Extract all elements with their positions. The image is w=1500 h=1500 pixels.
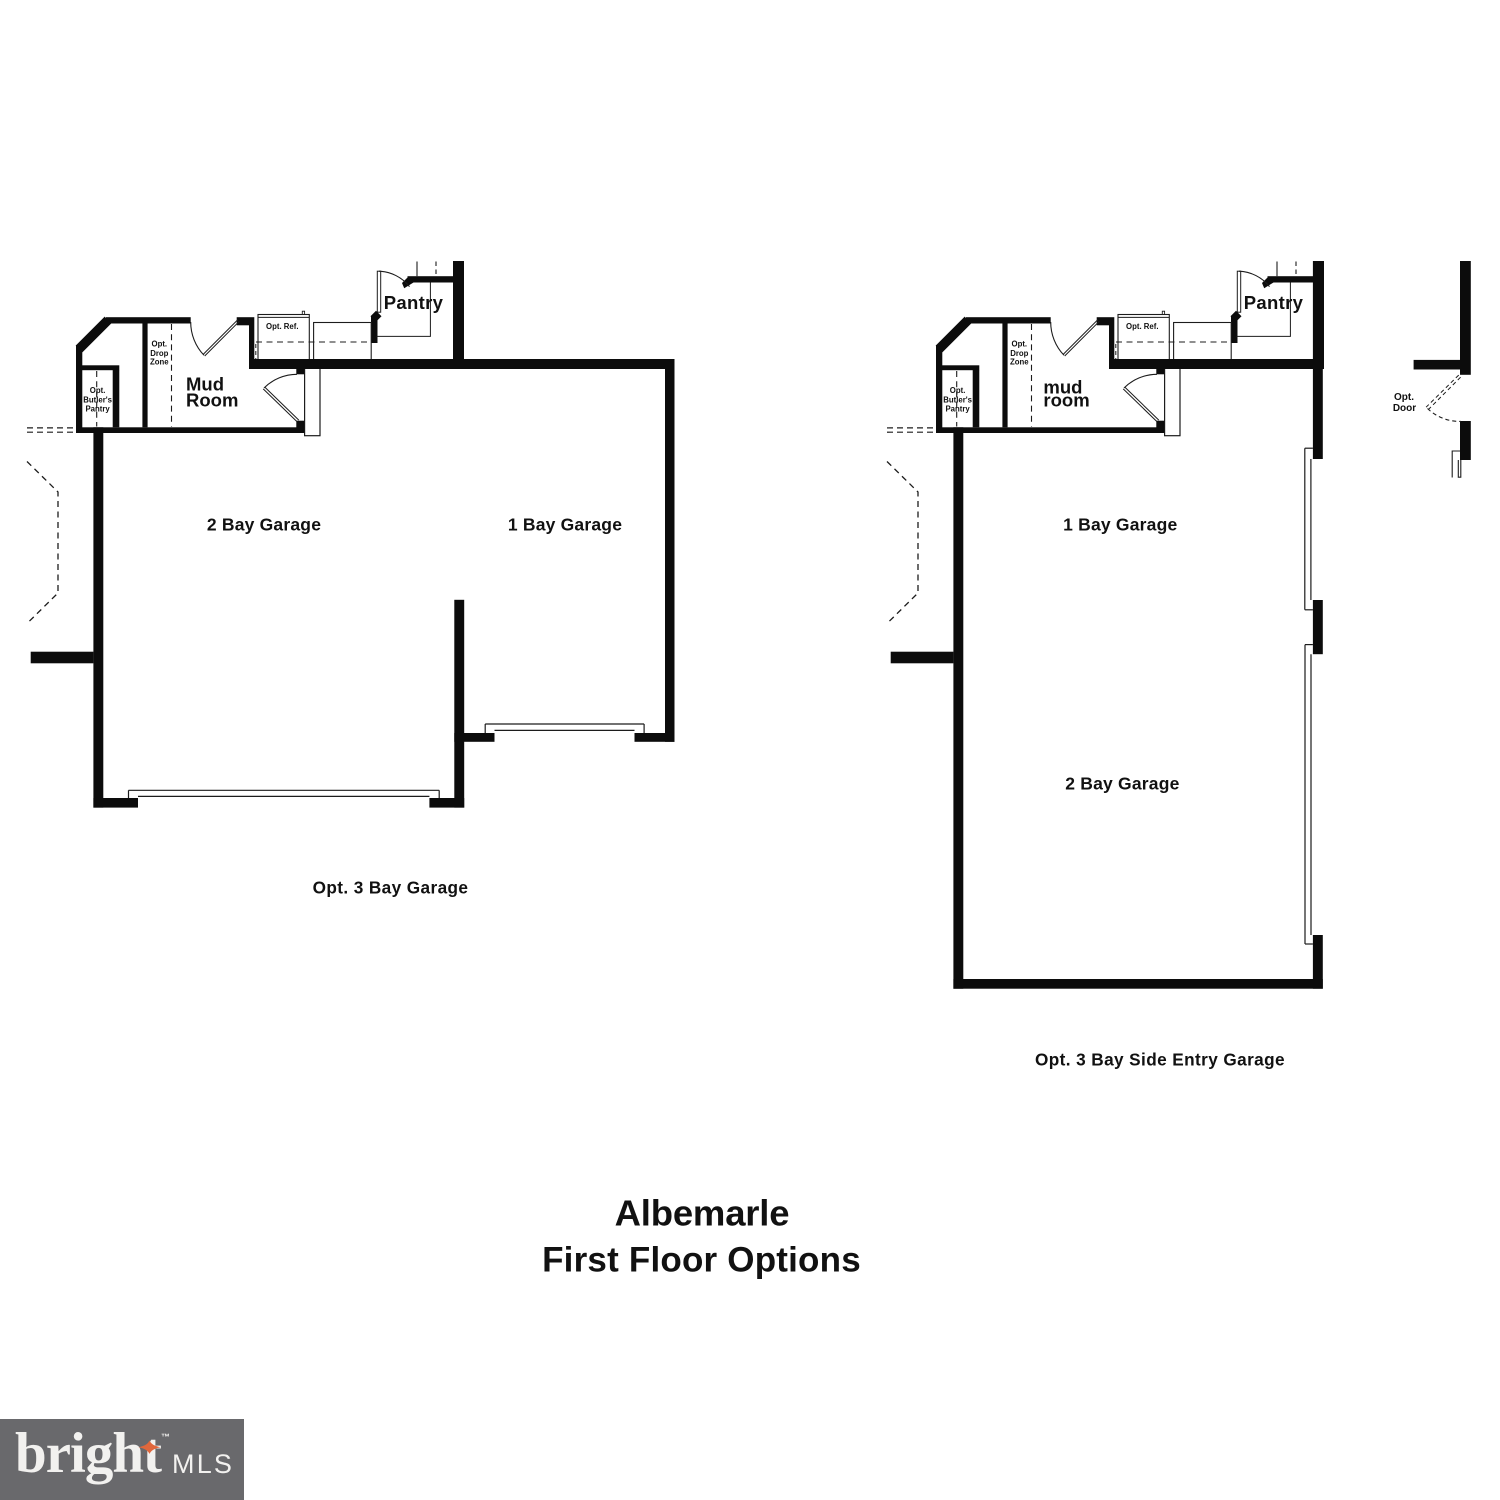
svg-text:Butler's: Butler's [83, 395, 112, 404]
svg-text:Opt.: Opt. [950, 386, 966, 395]
svg-text:First Floor Options: First Floor Options [542, 1241, 861, 1280]
svg-text:1 Bay Garage: 1 Bay Garage [508, 515, 622, 535]
svg-text:Opt. Ref.: Opt. Ref. [266, 322, 299, 331]
svg-text:2 Bay Garage: 2 Bay Garage [1065, 774, 1179, 794]
svg-text:Opt.: Opt. [1394, 392, 1414, 403]
svg-text:Zone: Zone [150, 358, 169, 367]
svg-text:Opt. 3 Bay Side Entry Garage: Opt. 3 Bay Side Entry Garage [1035, 1050, 1285, 1070]
svg-text:Pantry: Pantry [384, 292, 444, 313]
svg-text:Door: Door [1393, 403, 1416, 414]
svg-text:Zone: Zone [1010, 358, 1029, 367]
svg-text:bright: bright [15, 1422, 162, 1485]
svg-text:™: ™ [161, 1432, 170, 1442]
svg-text:Pantry: Pantry [85, 404, 110, 413]
svg-text:MLS: MLS [172, 1449, 234, 1479]
svg-text:Pantry: Pantry [945, 404, 970, 413]
svg-text:Pantry: Pantry [1244, 292, 1304, 313]
svg-text:1 Bay Garage: 1 Bay Garage [1063, 515, 1177, 535]
svg-text:Opt.: Opt. [152, 339, 168, 348]
svg-text:Albemarle: Albemarle [615, 1193, 790, 1234]
svg-text:Opt. Ref.: Opt. Ref. [1126, 322, 1159, 331]
svg-text:room: room [1043, 390, 1089, 411]
svg-text:Opt.: Opt. [90, 386, 106, 395]
svg-text:2 Bay Garage: 2 Bay Garage [207, 515, 321, 535]
svg-text:Opt. 3 Bay Garage: Opt. 3 Bay Garage [313, 878, 469, 898]
svg-text:Butler's: Butler's [943, 395, 972, 404]
svg-text:Opt.: Opt. [1012, 339, 1028, 348]
svg-text:Room: Room [186, 390, 238, 411]
